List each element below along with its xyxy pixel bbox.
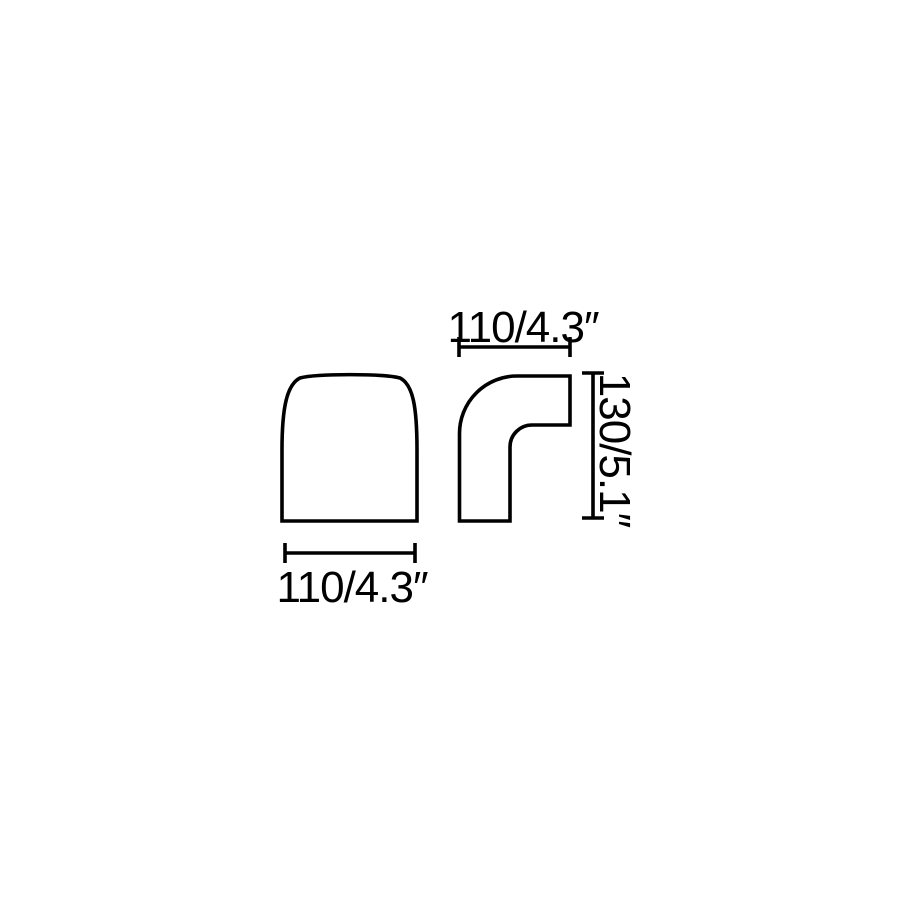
right-dimension-label: 130/5.1″ <box>590 373 639 528</box>
side-view-outline <box>460 376 571 521</box>
front-view-outline <box>282 375 417 521</box>
top-dimension-label: 110/4.3″ <box>447 303 599 352</box>
bottom-dimension-label: 110/4.3″ <box>276 563 428 612</box>
drawing-canvas: 110/4.3″ 130/5.1″ 110/4.3″ <box>0 0 900 900</box>
bottom-dimension-line <box>285 543 415 563</box>
dimension-drawing: 110/4.3″ 130/5.1″ 110/4.3″ <box>0 0 900 900</box>
